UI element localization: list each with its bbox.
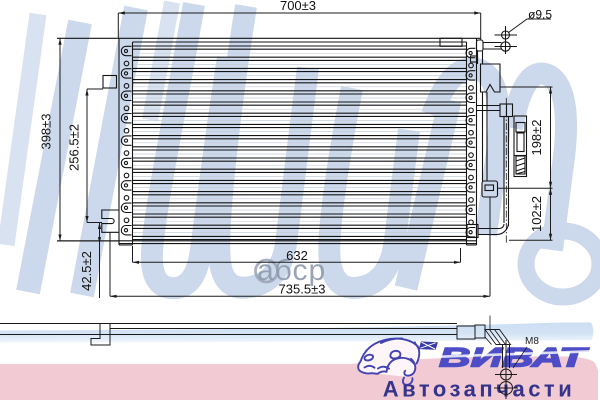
svg-text:700±3: 700±3 bbox=[280, 0, 316, 13]
svg-text:256.5±2: 256.5±2 bbox=[67, 124, 82, 171]
svg-text:Автозапчасти: Автозапчасти bbox=[383, 377, 575, 400]
svg-text:632: 632 bbox=[286, 248, 308, 263]
svg-text:735.5±3: 735.5±3 bbox=[279, 282, 326, 297]
svg-text:42.5±2: 42.5±2 bbox=[79, 251, 94, 291]
svg-text:ø9.5: ø9.5 bbox=[528, 8, 552, 22]
svg-text:102±2: 102±2 bbox=[529, 196, 544, 232]
svg-text:M8: M8 bbox=[525, 336, 539, 347]
svg-text:398±3: 398±3 bbox=[39, 113, 54, 149]
svg-text:198±2: 198±2 bbox=[529, 119, 544, 155]
